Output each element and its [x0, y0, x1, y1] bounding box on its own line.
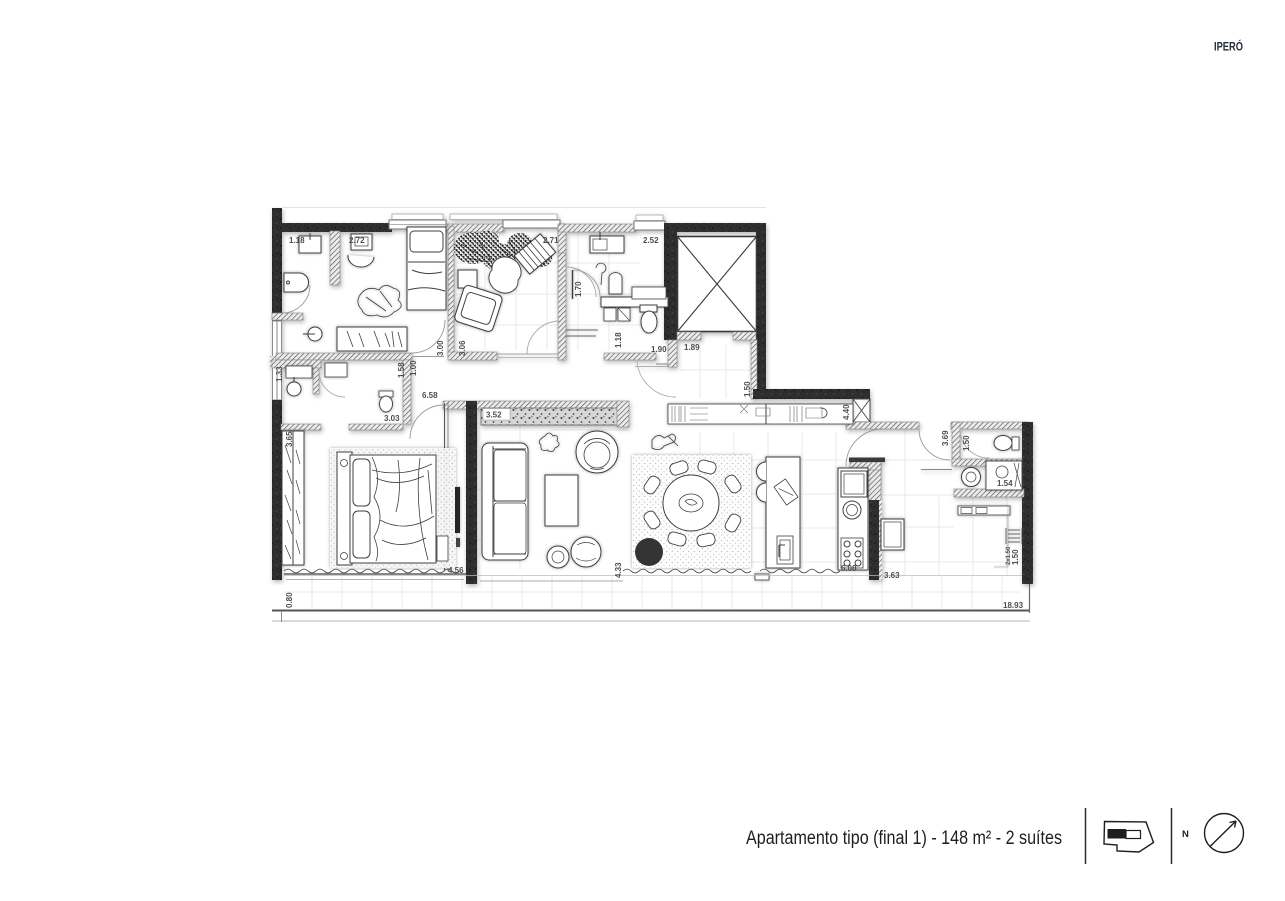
svg-text:1.50: 1.50: [962, 435, 971, 451]
svg-text:2.71: 2.71: [543, 236, 559, 245]
svg-text:1.50: 1.50: [1011, 549, 1020, 565]
svg-text:N: N: [1182, 829, 1189, 840]
svg-text:2x1.50: 2x1.50: [1006, 546, 1012, 565]
svg-text:3.63: 3.63: [884, 571, 900, 580]
svg-text:3.65: 3.65: [285, 431, 294, 447]
svg-text:1.89: 1.89: [684, 343, 700, 352]
svg-text:4.40: 4.40: [842, 404, 851, 420]
svg-text:1.33: 1.33: [275, 366, 284, 382]
svg-text:3.52: 3.52: [486, 411, 502, 420]
svg-text:4.33: 4.33: [614, 562, 623, 578]
svg-text:IPERÓ: IPERÓ: [1214, 41, 1243, 54]
svg-text:1.50: 1.50: [743, 381, 752, 397]
svg-text:4.56: 4.56: [448, 566, 464, 575]
svg-text:1.58: 1.58: [397, 362, 406, 378]
svg-text:Apartamento tipo (final 1) - 1: Apartamento tipo (final 1) - 148 m² - 2 …: [746, 828, 1062, 849]
svg-text:2.72: 2.72: [349, 236, 365, 245]
svg-text:18.93: 18.93: [1003, 601, 1024, 610]
svg-text:6.08: 6.08: [841, 564, 857, 573]
svg-text:6.58: 6.58: [422, 391, 438, 400]
svg-text:1.70: 1.70: [574, 281, 583, 297]
svg-text:1.18: 1.18: [289, 236, 305, 245]
svg-text:1.90: 1.90: [651, 345, 667, 354]
svg-text:2.52: 2.52: [643, 236, 659, 245]
svg-text:3.69: 3.69: [941, 430, 950, 446]
svg-text:3.00: 3.00: [436, 340, 445, 356]
svg-text:1.18: 1.18: [614, 332, 623, 348]
svg-text:3.03: 3.03: [384, 414, 400, 423]
svg-text:0.80: 0.80: [285, 592, 294, 608]
svg-text:1.54: 1.54: [997, 479, 1013, 488]
svg-text:3.06: 3.06: [458, 340, 467, 356]
svg-text:1.00: 1.00: [409, 360, 418, 376]
